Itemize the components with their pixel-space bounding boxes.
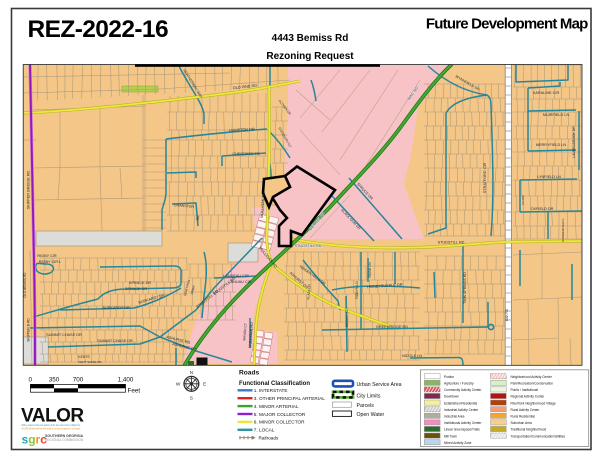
svg-text:RIGBY CIR: RIGBY CIR (37, 254, 57, 258)
svg-text:ROBYN LN: ROBYN LN (355, 281, 359, 299)
svg-text:Linear Greenspace/Trails: Linear Greenspace/Trails (444, 428, 480, 432)
svg-text:Mill Town: Mill Town (444, 434, 457, 438)
svg-text:KENT SHIRE DR: KENT SHIRE DR (78, 360, 102, 364)
svg-text:STUDSTILL RD: STUDSTILL RD (438, 241, 465, 245)
svg-text:SPENCE DR: SPENCE DR (125, 287, 147, 291)
svg-text:BECKY ST: BECKY ST (345, 308, 349, 327)
svg-text:GREENRIDGE RD: GREENRIDGE RD (376, 325, 408, 329)
svg-text:4. MINOR ARTERIAL: 4. MINOR ARTERIAL (254, 404, 299, 409)
svg-text:LAURELBROOK DR: LAURELBROOK DR (572, 126, 576, 158)
svg-text:STUDSTILL RD: STUDSTILL RD (295, 244, 322, 248)
svg-text:5. MAJOR COLLECTOR: 5. MAJOR COLLECTOR (254, 412, 306, 417)
svg-text:Roads: Roads (239, 370, 259, 377)
svg-text:7. LOCAL: 7. LOCAL (254, 428, 275, 433)
svg-text:NICOLE LN: NICOLE LN (402, 354, 422, 358)
svg-text:Future Development Map: Future Development Map (426, 15, 588, 32)
svg-text:ROSH LN: ROSH LN (368, 262, 372, 278)
svg-text:Community Activity Center: Community Activity Center (444, 388, 482, 392)
svg-text:Public / Institutional: Public / Institutional (511, 388, 539, 392)
svg-text:Industrial Area: Industrial Area (444, 415, 465, 419)
svg-text:SUMMIT CHASE DR: SUMMIT CHASE DR (46, 333, 82, 337)
svg-text:CHEROKEE TR: CHEROKEE TR (232, 152, 260, 156)
svg-text:Suburban Area: Suburban Area (511, 421, 532, 425)
svg-text:OXFIELD DR: OXFIELD DR (531, 207, 554, 211)
svg-text:SPENCE DR: SPENCE DR (129, 281, 151, 285)
svg-text:KENTS: KENTS (78, 355, 90, 359)
svg-text:Traditional Neighborhood: Traditional Neighborhood (511, 428, 547, 432)
svg-text:Institutional Activity Center: Institutional Activity Center (444, 421, 482, 425)
svg-text:Functional Classification: Functional Classification (239, 381, 310, 387)
svg-text:TWIN SPRINGS RD: TWIN SPRINGS RD (463, 272, 467, 304)
svg-text:OX RD: OX RD (521, 194, 525, 204)
svg-text:Agriculture / Forestry: Agriculture / Forestry (444, 382, 474, 386)
svg-text:Feet: Feet (128, 388, 141, 395)
svg-text:E: E (203, 382, 206, 388)
svg-text:Rural Activity Center: Rural Activity Center (511, 408, 541, 412)
svg-text:700: 700 (73, 376, 84, 383)
svg-text:sgrc: sgrc (22, 433, 48, 447)
svg-text:Regional Activity Center: Regional Activity Center (511, 395, 546, 399)
svg-text:Downtown: Downtown (444, 395, 459, 399)
svg-text:Railroads: Railroads (259, 436, 279, 441)
svg-text:REGIONAL COMMISSION: REGIONAL COMMISSION (45, 438, 84, 442)
svg-text:Neighborhood Activity Center: Neighborhood Activity Center (511, 375, 553, 379)
svg-text:RIGBY CIR L: RIGBY CIR L (39, 260, 62, 264)
svg-text:STRATFORD CIR: STRATFORD CIR (483, 162, 487, 193)
svg-text:350: 350 (49, 376, 60, 383)
svg-text:Parcels: Parcels (357, 403, 375, 409)
svg-text:Riverfront Neighborhood Villag: Riverfront Neighborhood Village (511, 401, 556, 405)
svg-text:KARALINE CIR: KARALINE CIR (533, 91, 560, 95)
svg-text:City Limits: City Limits (357, 393, 381, 399)
svg-text:4443 Bemiss Rd: 4443 Bemiss Rd (272, 33, 349, 44)
svg-text:6. MINOR COLLECTOR: 6. MINOR COLLECTOR (254, 420, 305, 425)
svg-text:MERRYFIELD LN: MERRYFIELD LN (536, 143, 567, 147)
svg-text:SKIPPER BRIDGE RD: SKIPPER BRIDGE RD (27, 170, 31, 209)
svg-text:SKIPPER B RD: SKIPPER B RD (27, 318, 31, 342)
svg-text:1. INTERSTATE: 1. INTERSTATE (254, 388, 288, 393)
svg-text:Rural Residential: Rural Residential (511, 415, 536, 419)
svg-text:W: W (176, 382, 181, 388)
svg-text:SUMMERFIELD L: SUMMERFIELD L (561, 218, 565, 243)
svg-text:OAK RD: OAK RD (505, 308, 509, 321)
svg-text:Mixed Activity Zone: Mixed Activity Zone (444, 441, 472, 445)
svg-text:SUMMIT CHASE DR: SUMMIT CHASE DR (97, 339, 133, 343)
svg-text:MUIRFIELD LN: MUIRFIELD LN (543, 113, 570, 117)
svg-text:Rezoning Request: Rezoning Request (266, 51, 354, 62)
svg-text:3. OTHER PRINCIPAL ARTERIAL: 3. OTHER PRINCIPAL ARTERIAL (254, 396, 325, 401)
svg-text:1,400: 1,400 (118, 376, 134, 383)
svg-text:N: N (190, 370, 194, 376)
svg-text:Industrial Activity Center: Industrial Activity Center (444, 408, 479, 412)
svg-text:VALOR will work with all who s: VALOR will work with all who share a com… (22, 427, 81, 431)
svg-text:S: S (190, 396, 193, 402)
svg-text:0: 0 (28, 376, 32, 383)
svg-text:Established Residential: Established Residential (444, 401, 477, 405)
svg-text:REZ-2022-16: REZ-2022-16 (28, 16, 168, 43)
svg-text:Transportation/Communication/U: Transportation/Communication/Utilities (511, 434, 566, 438)
svg-text:Park/Recreation/Conservation: Park/Recreation/Conservation (511, 382, 554, 386)
svg-text:Urban Service Area: Urban Service Area (357, 382, 402, 388)
svg-text:BURKARDT DR: BURKARDT DR (102, 306, 130, 310)
svg-text:Portion: Portion (444, 375, 454, 379)
svg-text:LYNFIELD LN: LYNFIELD LN (537, 175, 561, 179)
svg-text:LANDEAU CIR: LANDEAU CIR (223, 274, 249, 278)
svg-text:Open Water: Open Water (357, 412, 385, 418)
